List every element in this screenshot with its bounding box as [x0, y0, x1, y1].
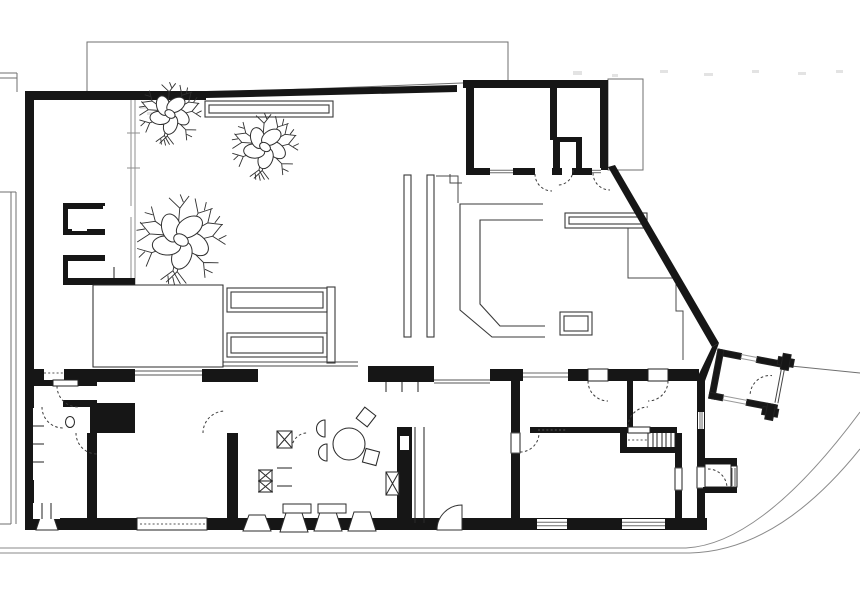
window-sill — [523, 369, 568, 381]
door-swing — [42, 407, 63, 428]
window-sill-gap — [490, 168, 513, 175]
desk — [78, 305, 90, 362]
window-bench — [283, 504, 311, 513]
appliance-xbox — [277, 431, 292, 448]
window-sill-gap — [537, 519, 567, 529]
dining-chair — [362, 448, 379, 465]
garden-bench-c-outer — [460, 204, 545, 337]
scan-mark — [798, 72, 806, 75]
door-swing — [520, 433, 539, 452]
wall-sauna — [68, 255, 105, 261]
door-opening — [697, 467, 705, 488]
garden-annex — [707, 341, 795, 422]
annex-sill — [723, 396, 747, 400]
garden-bench-ne — [565, 213, 647, 228]
wall-kitchen — [227, 433, 238, 525]
pergola-post — [404, 175, 411, 337]
cabinet — [60, 506, 70, 518]
annex-door-swing — [750, 372, 772, 397]
wall-diagonal — [608, 165, 719, 347]
scan-mark — [612, 74, 618, 77]
layer-stairs — [628, 433, 675, 447]
closet-hall — [168, 408, 225, 433]
scan-mark — [704, 73, 713, 76]
wall-closet — [576, 142, 582, 170]
wall-niche — [97, 478, 110, 496]
wall-stair-south — [620, 447, 677, 453]
wall-closet — [553, 137, 582, 142]
garden-wall-w2-inner — [231, 337, 323, 353]
floor-plan-drawing — [0, 0, 860, 592]
wall-garage-left — [466, 88, 474, 170]
layer-annex — [707, 341, 795, 422]
wall-sauna-south — [63, 278, 135, 285]
counter — [103, 206, 132, 217]
wall-interior-w — [87, 433, 97, 525]
garden-bench-ne-inner — [569, 217, 643, 224]
door-opening — [53, 380, 78, 386]
garage-court-outline — [608, 79, 643, 170]
window-bench — [318, 504, 346, 513]
annex-wall — [709, 392, 724, 401]
splayed-window — [314, 512, 342, 531]
wall-garage-south — [572, 168, 592, 175]
dining-chair-seat — [362, 448, 379, 465]
garden-wall-w1-inner — [231, 292, 323, 308]
street-line — [791, 366, 860, 373]
window-sill — [537, 519, 567, 529]
garden-wall-spine — [327, 287, 335, 363]
wall-stair-west — [620, 427, 627, 453]
wall-north-slant — [206, 85, 457, 98]
wall-west — [25, 99, 34, 530]
wall-bedroom-top — [28, 380, 53, 386]
desk — [97, 303, 108, 363]
window-sill — [698, 412, 704, 429]
door-opening — [628, 427, 650, 433]
splayed-window — [348, 512, 376, 531]
wall-courtyard — [202, 369, 258, 382]
window-sill-gap — [523, 369, 568, 381]
dining-chair-curved — [319, 444, 328, 461]
chimney-flue — [400, 436, 409, 450]
door-swing — [588, 381, 608, 401]
wall-garage-right — [600, 80, 608, 170]
wall-courtyard — [668, 369, 699, 381]
hall-cabinet — [498, 431, 510, 450]
wall-courtyard — [608, 369, 648, 381]
wall-bedrooms-div — [627, 381, 633, 427]
wall-east — [697, 378, 705, 527]
garden-bench-c-inner — [480, 220, 545, 326]
scan-mark — [752, 70, 759, 73]
hall-cabinet — [499, 455, 510, 477]
sauna-bench — [72, 209, 84, 219]
kitchen-counter — [277, 450, 292, 503]
door-swing — [593, 173, 610, 190]
floor-plan-sheet — [0, 0, 860, 592]
door-opening — [511, 433, 520, 453]
appliance-xbox — [259, 470, 272, 481]
wall-sauna — [63, 203, 105, 209]
paving-edge — [450, 174, 462, 183]
wall-garage-south — [513, 168, 535, 175]
cabinet — [33, 503, 60, 519]
door-swing — [292, 433, 307, 448]
pergola-post — [427, 175, 434, 337]
annex-pillar-cross — [780, 353, 791, 370]
dining-table — [333, 428, 365, 460]
planter-north-inner — [209, 105, 329, 113]
chair — [70, 311, 77, 318]
chair — [70, 345, 77, 352]
tree-symbol — [137, 194, 227, 285]
wall-vestibule — [703, 458, 737, 464]
planter-north — [205, 101, 333, 117]
kitchen-counter — [240, 438, 258, 503]
splayed-window — [280, 513, 308, 532]
wall-bedroom-top — [78, 380, 97, 386]
wall-garage-mid — [550, 88, 557, 140]
wall-bath-right — [90, 407, 97, 433]
scan-mark — [573, 71, 582, 75]
scan-mark — [836, 70, 843, 73]
annex-sill — [723, 400, 747, 404]
tree-symbol — [232, 113, 299, 181]
door-swing — [535, 174, 552, 191]
door-swing — [648, 381, 668, 401]
door-opening — [648, 369, 668, 381]
splayed-window — [243, 515, 271, 531]
terrace-room-outline — [93, 285, 223, 367]
wall-sauna — [63, 203, 68, 235]
garden-bench-e-inner — [564, 316, 588, 331]
appliance-xbox — [259, 481, 272, 492]
desk — [75, 455, 87, 512]
annex-sill — [741, 354, 757, 357]
dining-chair-seat — [356, 407, 376, 427]
annex-window-line — [775, 369, 781, 402]
annex-window-line — [778, 370, 784, 403]
wall-courtyard-island — [368, 366, 434, 382]
appliance-xbox — [386, 472, 399, 495]
splayed-window — [36, 518, 58, 530]
door-opening — [588, 369, 608, 381]
door-swing-notch — [437, 505, 462, 530]
wall-garage-south — [466, 168, 490, 175]
dining-chair-curved — [317, 420, 326, 437]
wall-courtyard — [568, 369, 588, 381]
scan-mark — [660, 70, 668, 73]
bed — [70, 130, 110, 172]
wall-bath-chunk — [97, 403, 135, 433]
window-sill-gap — [622, 519, 665, 529]
wall-bath-top — [63, 400, 97, 407]
tree-twig — [193, 252, 219, 278]
layer-furniture — [33, 123, 510, 523]
vestibule-floor — [705, 464, 731, 487]
wc-bowl — [66, 417, 75, 428]
layer-openings2 — [731, 466, 737, 487]
window-sill-gap — [698, 412, 704, 429]
wall-courtyard — [490, 369, 523, 381]
wall-garage-south — [552, 168, 562, 175]
pergola-link — [436, 176, 458, 203]
dining-chair — [356, 407, 376, 427]
window-sill — [622, 519, 665, 529]
wall-vestibule — [703, 487, 737, 493]
annex-sill — [741, 358, 757, 361]
door-opening — [675, 468, 682, 490]
window-sill — [490, 168, 513, 175]
wall-garage-top — [463, 80, 608, 88]
